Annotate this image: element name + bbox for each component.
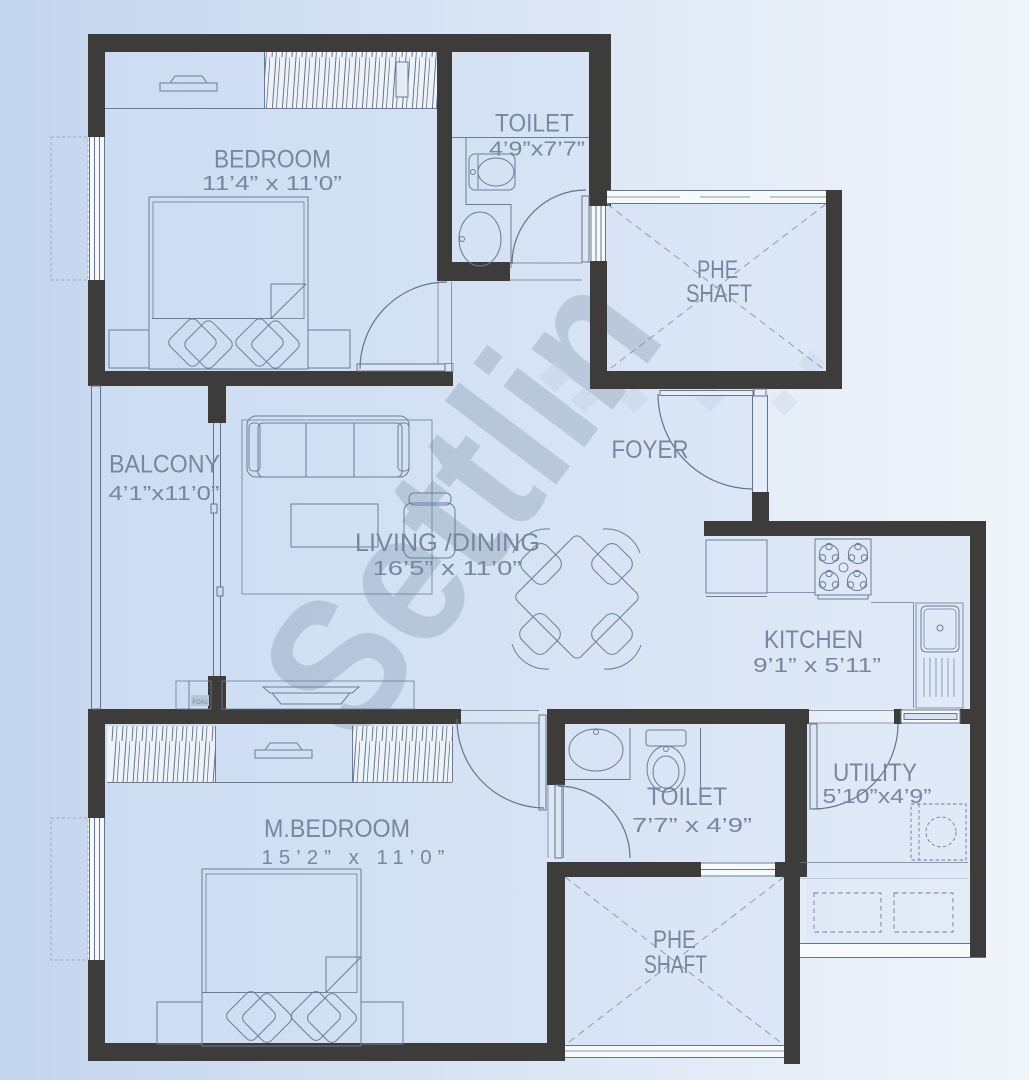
svg-text:SHAFT: SHAFT: [686, 280, 752, 308]
svg-text:BEDROOM: BEDROOM: [214, 146, 331, 174]
svg-text:LIVING /DINING: LIVING /DINING: [355, 529, 540, 557]
svg-text:M.BEDROOM: M.BEDROOM: [264, 815, 410, 843]
svg-text:PHE: PHE: [653, 926, 696, 954]
svg-text:5’10”x4’9”: 5’10”x4’9”: [823, 785, 932, 808]
svg-text:7’7” x 4’9”: 7’7” x 4’9”: [632, 814, 752, 837]
svg-text:16’5” x 11’0”: 16’5” x 11’0”: [373, 557, 522, 580]
svg-text:9’1” x 5’11”: 9’1” x 5’11”: [753, 654, 881, 677]
svg-text:KITCHEN: KITCHEN: [764, 626, 863, 654]
svg-text:4’9”x7’7”: 4’9”x7’7”: [489, 138, 585, 161]
svg-text:TOILET: TOILET: [647, 783, 727, 811]
svg-text:SHAFT: SHAFT: [644, 951, 707, 979]
svg-text:4’1”x11’0”: 4’1”x11’0”: [109, 482, 220, 505]
svg-text:BALCONY: BALCONY: [109, 451, 220, 479]
svg-text:FOYER: FOYER: [612, 436, 689, 464]
svg-text:11’4” x 11’0”: 11’4” x 11’0”: [202, 172, 342, 195]
svg-text:FOAc: FOAc: [192, 700, 207, 706]
svg-text:TOILET: TOILET: [495, 110, 574, 138]
svg-text:UTILITY: UTILITY: [833, 759, 917, 787]
